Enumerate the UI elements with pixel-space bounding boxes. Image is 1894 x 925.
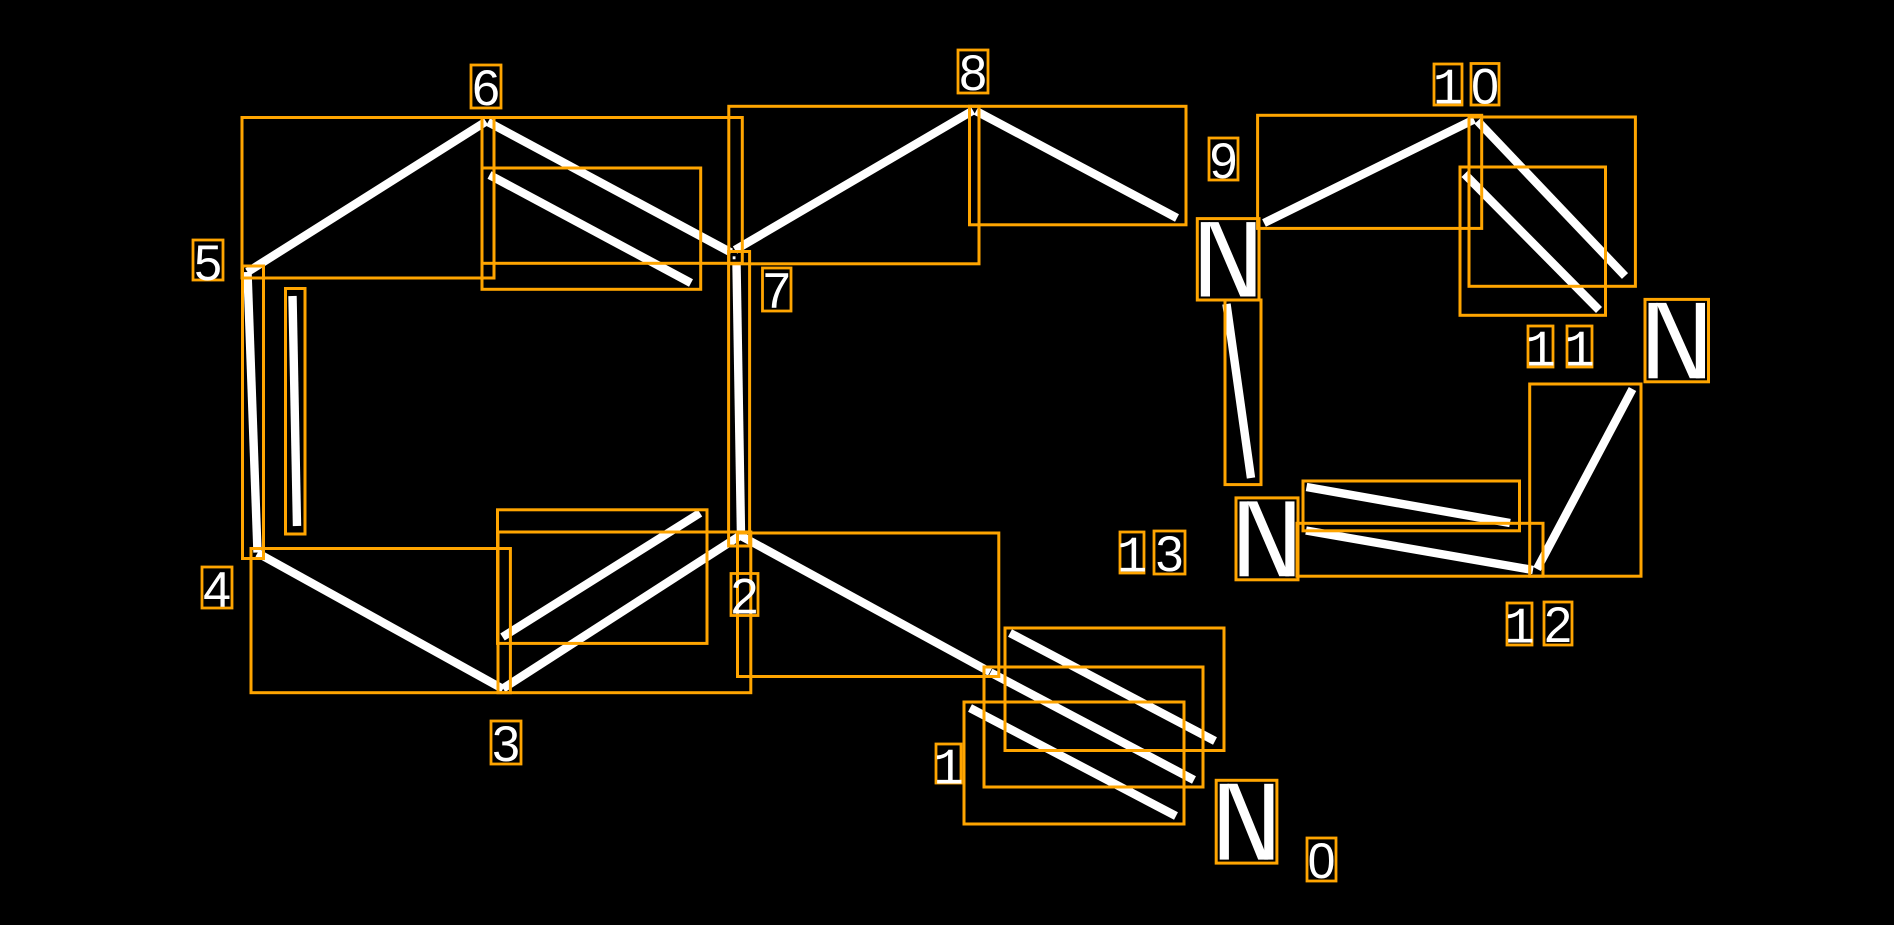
svg-text:6: 6	[472, 60, 500, 116]
svg-text:1: 1	[1525, 325, 1556, 382]
svg-text:3: 3	[492, 716, 520, 772]
svg-text:1: 1	[1433, 63, 1464, 120]
svg-text:1: 1	[1504, 602, 1535, 659]
svg-text:1: 1	[1564, 325, 1595, 382]
svg-text:1: 1	[933, 743, 964, 800]
svg-text:3: 3	[1156, 526, 1184, 582]
svg-text:4: 4	[203, 562, 231, 618]
svg-text:5: 5	[194, 235, 222, 291]
svg-text:0: 0	[1471, 59, 1499, 115]
svg-text:8: 8	[959, 45, 987, 101]
svg-text:2: 2	[1544, 597, 1572, 653]
svg-text:9: 9	[1210, 133, 1238, 189]
svg-text:1: 1	[1117, 531, 1148, 588]
svg-text:2: 2	[731, 569, 759, 625]
svg-text:7: 7	[763, 263, 791, 319]
svg-text:0: 0	[1308, 833, 1336, 889]
